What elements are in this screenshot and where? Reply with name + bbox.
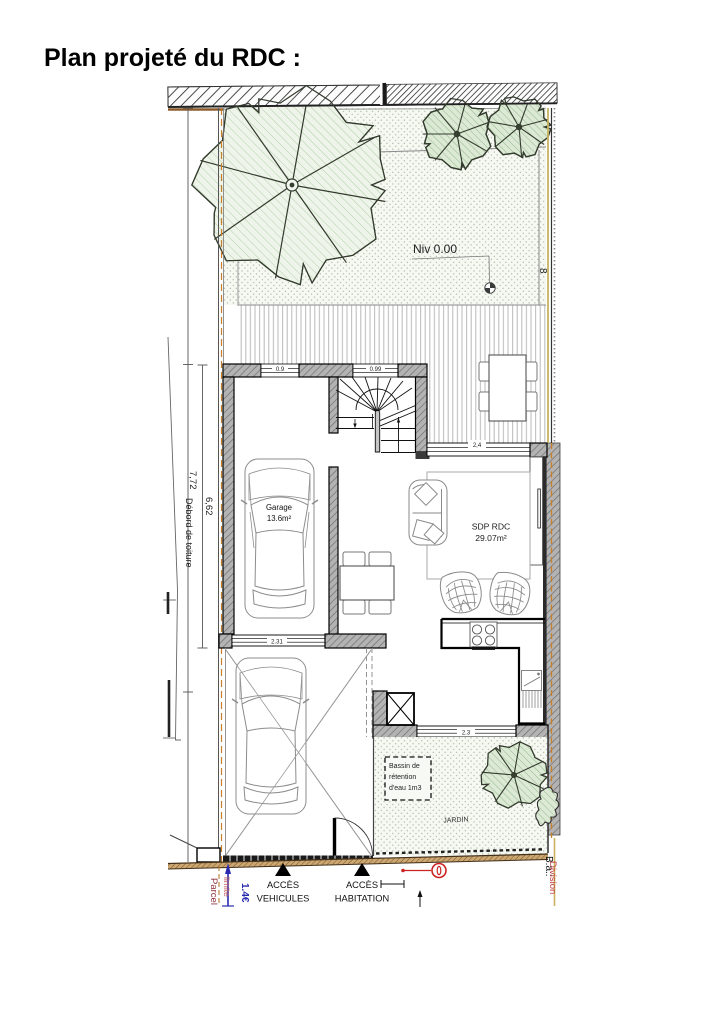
svg-text:7,72: 7,72 <box>187 471 198 490</box>
svg-text:Plan projeté du RDC :: Plan projeté du RDC : <box>44 44 301 72</box>
svg-text:6,62: 6,62 <box>203 497 214 516</box>
svg-text:ACCÈS: ACCÈS <box>346 880 378 890</box>
svg-text:Niv 0.00: Niv 0.00 <box>413 242 457 256</box>
svg-text:SDP RDC: SDP RDC <box>472 522 511 532</box>
svg-text:0.9: 0.9 <box>276 367 285 373</box>
svg-text:Division: Division <box>547 861 558 894</box>
svg-text:Parcel: Parcel <box>208 878 219 905</box>
svg-text:8: 8 <box>537 268 548 274</box>
svg-text:Garage: Garage <box>266 503 292 512</box>
svg-text:Débord de toiture: Débord de toiture <box>184 498 194 568</box>
svg-text:13.6m²: 13.6m² <box>267 514 292 523</box>
svg-text:HABITATION: HABITATION <box>335 894 389 904</box>
svg-text:limite: limite <box>222 877 232 897</box>
svg-text:0.99: 0.99 <box>370 367 382 373</box>
svg-text:2,4: 2,4 <box>473 443 482 449</box>
svg-text:ACCÈS: ACCÈS <box>267 880 299 890</box>
svg-text:Bassin de: Bassin de <box>389 763 420 770</box>
svg-text:VEHICULES: VEHICULES <box>257 894 310 904</box>
svg-text:rétention: rétention <box>389 774 416 781</box>
svg-text:1.4€: 1.4€ <box>239 883 250 903</box>
svg-text:d'eau 1m3: d'eau 1m3 <box>389 785 422 792</box>
svg-text:29.07m²: 29.07m² <box>475 533 507 543</box>
svg-text:2.31: 2.31 <box>271 639 283 645</box>
svg-text:2.3: 2.3 <box>462 730 471 736</box>
svg-text:JARDIN: JARDIN <box>443 816 469 824</box>
